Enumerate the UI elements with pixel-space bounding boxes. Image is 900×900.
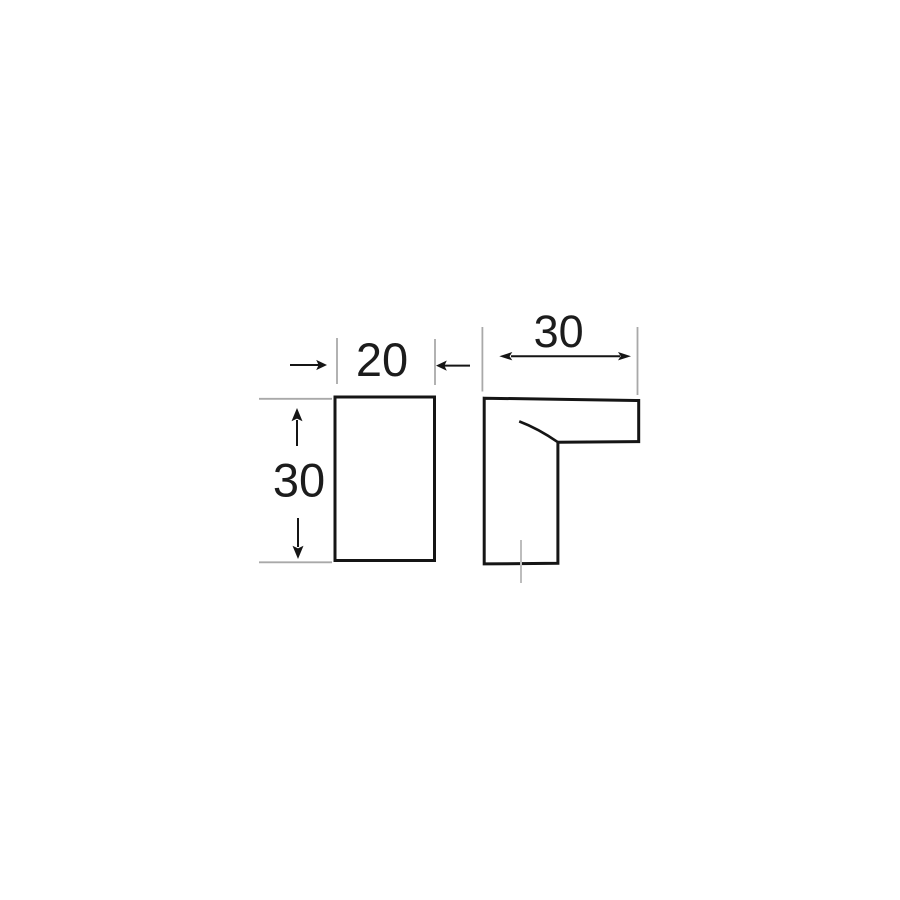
svg-text:20: 20: [356, 333, 408, 386]
svg-text:30: 30: [534, 306, 584, 357]
svg-text:30: 30: [273, 454, 325, 507]
